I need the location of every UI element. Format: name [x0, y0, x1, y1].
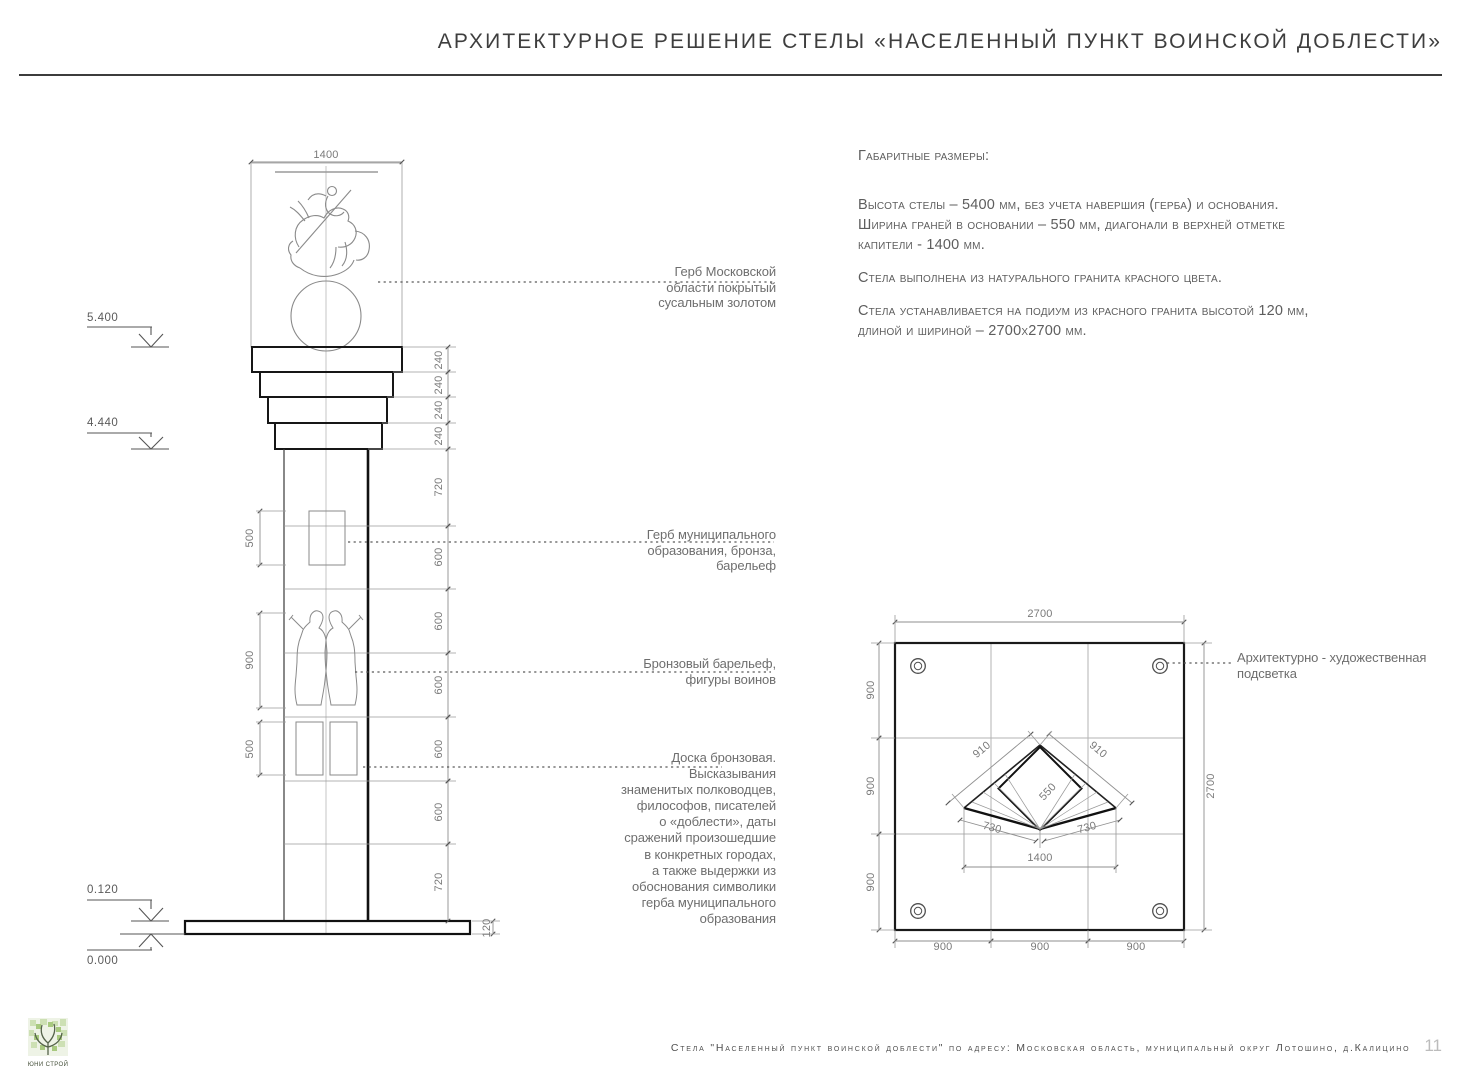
dim-label: 240 [433, 351, 445, 370]
podium-plan-outline [895, 643, 1184, 930]
level-label: 0.120 [87, 884, 118, 896]
specs-paragraph-dimensions: Высота стелы – 5400 мм, без учета наверш… [858, 195, 1433, 255]
dim-label: 1400 [1027, 852, 1052, 864]
dim-label: 600 [433, 612, 445, 631]
logo-tree-icon [28, 1018, 68, 1056]
page-title: АРХИТЕКТУРНОЕ РЕШЕНИЕ СТЕЛЫ «НАСЕЛЕННЫЙ … [438, 30, 1442, 54]
annotation-bas-relief: Бронзовый барельеф, фигуры воинов [591, 656, 776, 687]
annotation-bronze-plaque: Доска бронзовая. Высказывания знаменитых… [586, 750, 776, 927]
title-divider [19, 74, 1442, 76]
dim-label: 900 [244, 651, 256, 670]
dim-label: 500 [244, 740, 256, 759]
dim-label: 900 [934, 941, 953, 953]
drawing-sheet: { "title": "АРХИТЕКТУРНОЕ РЕШЕНИЕ СТЕЛЫ … [0, 0, 1461, 1080]
logo-company-name: ЮНИ СТРОЙ [25, 1062, 71, 1068]
dim-label: 240 [433, 376, 445, 395]
footer-project-address: Стела "Населенный пункт воинской доблест… [671, 1042, 1411, 1054]
capital [252, 347, 402, 449]
dim-label: 900 [865, 777, 877, 796]
stela-footprint [964, 745, 1116, 830]
stela-plan [871, 615, 1233, 948]
level-label: 4.440 [87, 417, 118, 429]
annotation-lighting: Архитектурно - художественная подсветка [1237, 650, 1437, 681]
dim-label: 600 [433, 803, 445, 822]
level-label: 0.000 [87, 955, 118, 967]
specs-block: Габаритные размеры: Высота стелы – 5400 … [858, 146, 1433, 354]
dim-label: 1400 [313, 149, 338, 161]
municipal-emblem-plaque [309, 511, 345, 565]
dim-label: 900 [865, 873, 877, 892]
bronze-plaque-left [296, 722, 323, 775]
dim-label: 240 [433, 427, 445, 446]
company-logo: ЮНИ СТРОЙ [25, 1018, 71, 1068]
annotation-moscow-emblem: Герб Московской области покрытый сусальн… [591, 264, 776, 311]
specs-paragraph-podium: Стела устанавливается на подиум из красн… [858, 301, 1433, 341]
dim-label: 600 [433, 676, 445, 695]
dim-label: 240 [433, 401, 445, 420]
dim-label: 720 [433, 478, 445, 497]
podium [185, 921, 470, 934]
dim-label: 500 [244, 529, 256, 548]
annotation-municipal-emblem: Герб муниципального образования, бронза,… [591, 527, 776, 574]
lighting-fixtures [911, 659, 1168, 919]
footer: Стела "Населенный пункт воинской доблест… [671, 1036, 1442, 1056]
page-number: 11 [1424, 1036, 1442, 1056]
level-label: 5.400 [87, 312, 118, 324]
moscow-emblem-art [289, 187, 370, 352]
dim-label: 900 [1127, 941, 1146, 953]
specs-paragraph-material: Стела выполнена из натурального гранита … [858, 268, 1433, 288]
dim-label: 900 [1031, 941, 1050, 953]
bronze-plaque-right [330, 722, 357, 775]
dim-label: 900 [865, 681, 877, 700]
dim-label: 600 [433, 548, 445, 567]
specs-heading: Габаритные размеры: [858, 146, 1433, 166]
dim-label: 120 [481, 919, 493, 938]
dim-label: 600 [433, 740, 445, 759]
dim-label: 2700 [1205, 773, 1217, 798]
dim-label: 720 [433, 873, 445, 892]
dim-label: 2700 [1027, 608, 1052, 620]
